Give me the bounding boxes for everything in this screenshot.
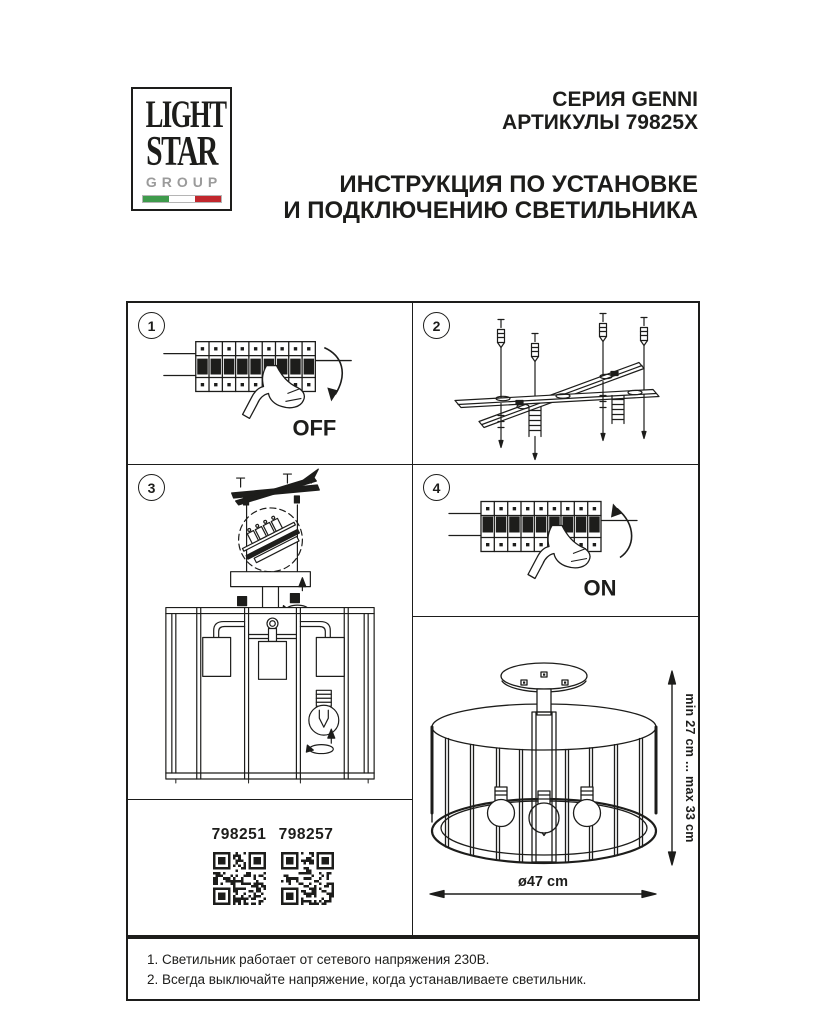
main-title-line1: ИНСТРУКЦИЯ ПО УСТАНОВКЕ [339, 171, 698, 199]
series-title: СЕРИЯ GENNI [552, 88, 698, 112]
qr-code-right [281, 852, 334, 905]
fixture-dimensions-panel: min 27 cm ... max 33 cm ø47 cm [413, 617, 698, 935]
breaker-toggles-on [483, 517, 600, 533]
notes-box: 1. Светильник работает от сетевого напря… [126, 937, 700, 1001]
product-code: 798251 [204, 826, 274, 844]
fixture-assembly-diagram [128, 465, 412, 799]
lightstar-logo: LIGHT STAR GROUP [131, 87, 232, 211]
logo-word-group: GROUP [133, 174, 230, 190]
wall-plug-anchors [498, 314, 648, 362]
flag-white [169, 196, 195, 202]
note-line-1: 1. Светильник работает от сетевого напря… [147, 950, 684, 970]
step-2-panel: 2 [413, 303, 698, 465]
product-code: 798257 [271, 826, 341, 844]
italian-flag-stripe [142, 195, 222, 203]
flag-red [195, 196, 221, 202]
main-title-line2: И ПОДКЛЮЧЕНИЮ СВЕТИЛЬНИКА [283, 197, 698, 225]
step-3-panel: 3 [128, 465, 413, 800]
arrow-up-icon [611, 504, 632, 558]
qr-code-left [213, 852, 266, 905]
off-label: OFF [292, 415, 336, 440]
step-number-badge: 2 [423, 312, 450, 339]
flag-green [143, 196, 169, 202]
breaker-off-diagram: OFF [128, 303, 412, 464]
product-codes-panel: 798251 798257 [128, 800, 413, 935]
stem [537, 689, 551, 715]
instruction-sheet-page: { "header": { "logo": { "word1": "LIGHT"… [0, 0, 826, 1024]
fixture-dimension-diagram: min 27 cm ... max 33 cm ø47 cm [413, 617, 698, 935]
step-number-badge: 4 [423, 474, 450, 501]
height-dimension-label: min 27 cm ... max 33 cm [683, 693, 697, 842]
arrow-down-icon [324, 348, 342, 402]
step-number-badge: 3 [138, 474, 165, 501]
mounting-bracket-diagram [413, 303, 698, 464]
instruction-grid: 1 OFF 2 [126, 301, 700, 937]
articles-title: АРТИКУЛЫ 79825X [502, 111, 698, 135]
step-1-panel: 1 OFF [128, 303, 413, 465]
breaker-toggles-off [197, 359, 314, 375]
note-line-2: 2. Всегда выключайте напряжение, когда у… [147, 970, 684, 990]
crossed-mounting-bars [455, 363, 659, 428]
step-4-panel: 4 ON [413, 465, 698, 617]
diameter-dimension-label: ø47 cm [518, 874, 568, 890]
logo-word-star: STAR [145, 130, 219, 172]
breaker-on-diagram: ON [413, 465, 698, 616]
step-number-badge: 1 [138, 312, 165, 339]
on-label: ON [584, 576, 617, 601]
ceiling-bracket [232, 469, 320, 505]
ceiling-canopy [501, 663, 587, 692]
height-dimension [669, 671, 676, 865]
